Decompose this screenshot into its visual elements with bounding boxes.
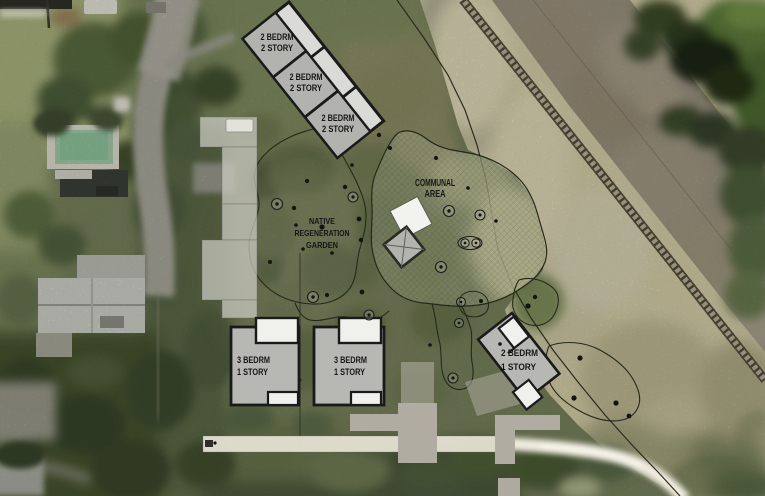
svg-text:3 BEDRM: 3 BEDRM	[334, 355, 367, 365]
svg-text:1 STORY: 1 STORY	[501, 362, 536, 372]
svg-text:1 STORY: 1 STORY	[237, 367, 268, 377]
svg-text:1 STORY: 1 STORY	[334, 367, 365, 377]
svg-text:2 STORY: 2 STORY	[290, 83, 322, 93]
svg-text:AREA: AREA	[425, 189, 446, 200]
svg-text:2 STORY: 2 STORY	[322, 124, 354, 134]
svg-text:2 BEDRM: 2 BEDRM	[501, 348, 538, 358]
svg-text:2 BEDRM: 2 BEDRM	[322, 113, 355, 123]
svg-text:2 STORY: 2 STORY	[261, 43, 293, 53]
svg-text:GARDEN: GARDEN	[306, 240, 338, 250]
svg-text:COMMUNAL: COMMUNAL	[415, 178, 455, 189]
svg-text:2 BEDRM: 2 BEDRM	[290, 72, 323, 82]
svg-text:3 BEDRM: 3 BEDRM	[237, 355, 270, 365]
svg-text:2 BEDRM: 2 BEDRM	[261, 32, 294, 42]
